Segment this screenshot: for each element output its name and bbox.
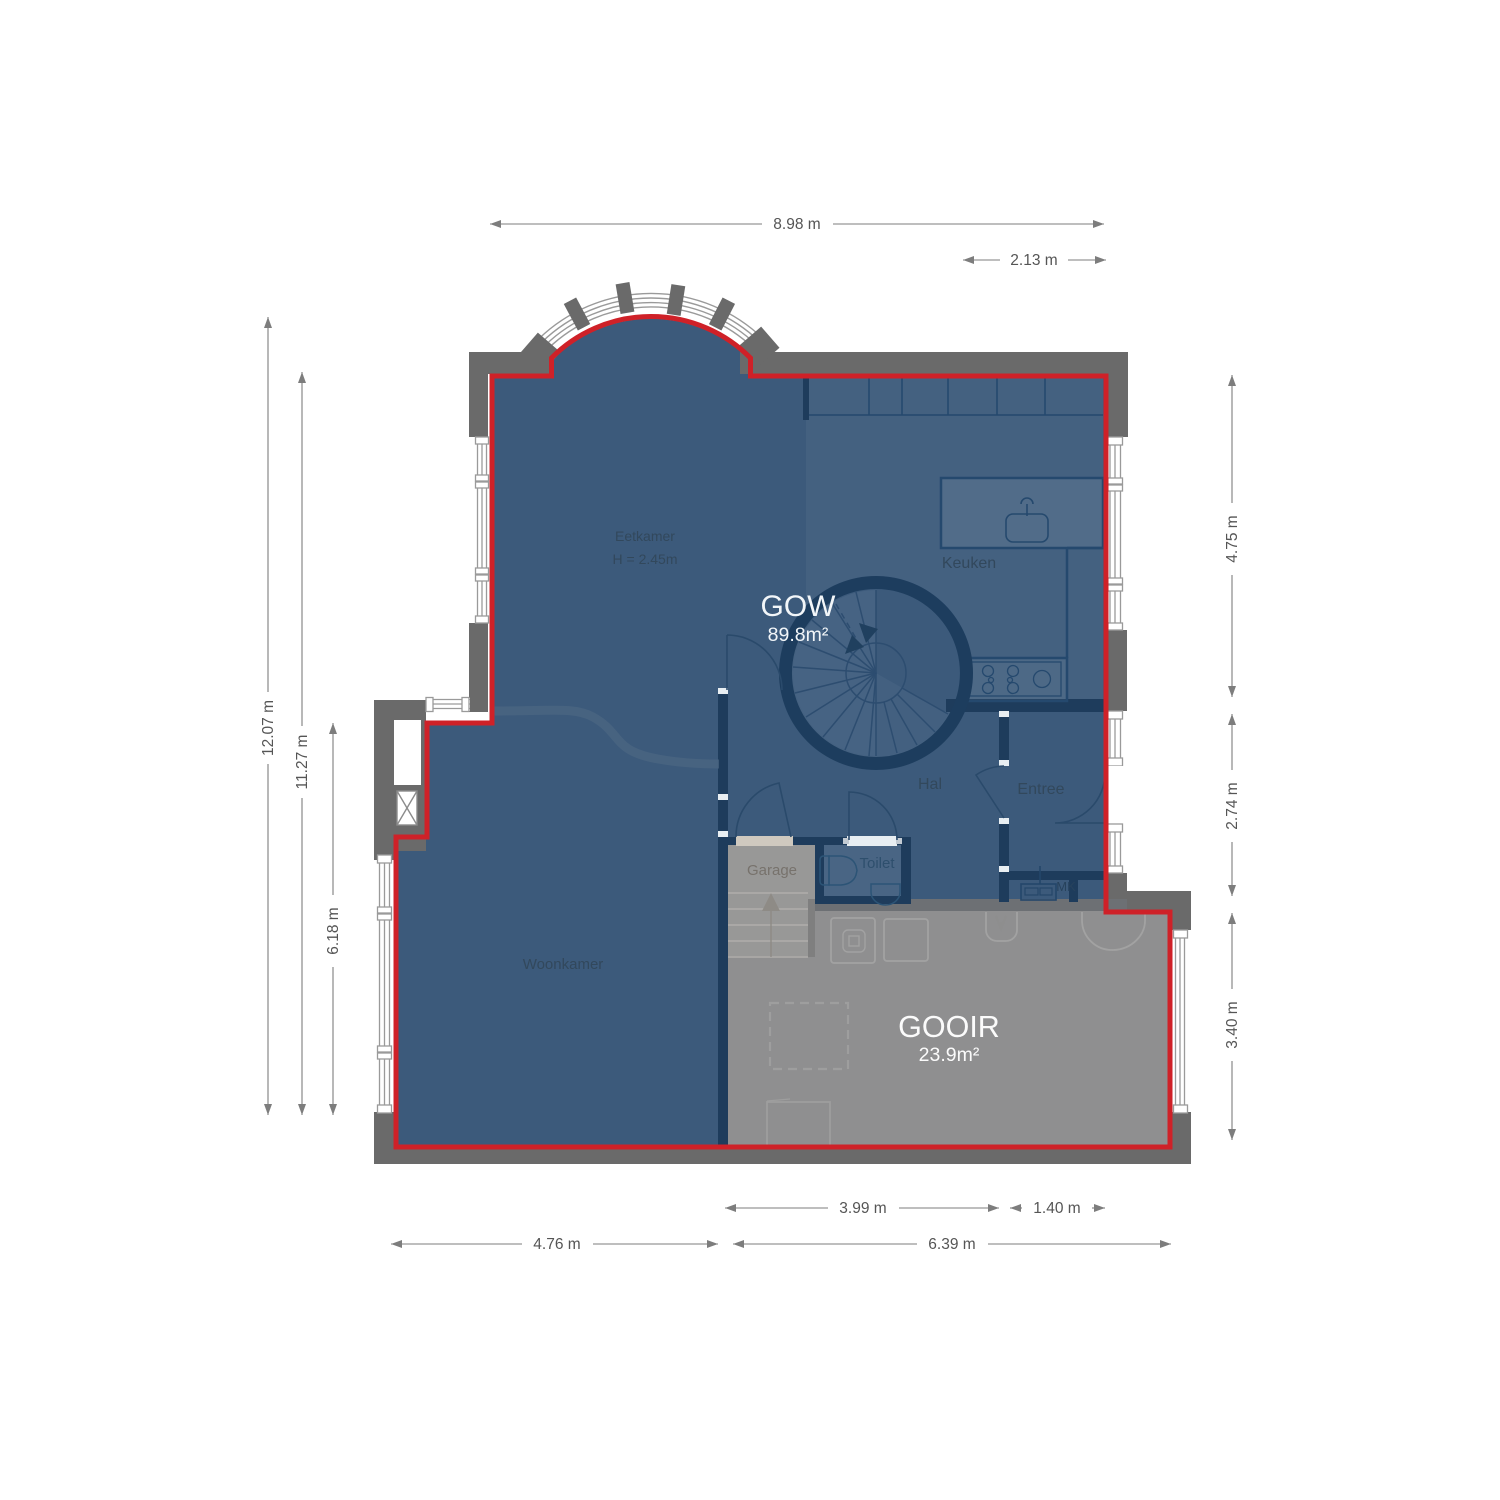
svg-text:2.74 m: 2.74 m xyxy=(1224,782,1241,829)
svg-text:23.9m²: 23.9m² xyxy=(919,1044,980,1066)
svg-text:11.27 m: 11.27 m xyxy=(294,735,311,790)
svg-text:6.39 m: 6.39 m xyxy=(928,1236,975,1253)
svg-text:Garage: Garage xyxy=(747,862,797,879)
svg-text:Keuken: Keuken xyxy=(942,555,996,572)
svg-text:Eetkamer: Eetkamer xyxy=(615,528,675,544)
svg-text:Hal: Hal xyxy=(918,776,942,793)
svg-text:3.99 m: 3.99 m xyxy=(839,1200,886,1217)
svg-text:3.40 m: 3.40 m xyxy=(1224,1001,1241,1048)
svg-text:Woonkamer: Woonkamer xyxy=(523,956,604,973)
svg-text:89.8m²: 89.8m² xyxy=(768,624,829,646)
svg-text:GOW: GOW xyxy=(761,590,837,623)
svg-text:Toilet: Toilet xyxy=(859,855,895,872)
svg-text:GOOIR: GOOIR xyxy=(898,1010,1000,1044)
svg-text:6.18 m: 6.18 m xyxy=(325,907,342,954)
svg-text:12.07 m: 12.07 m xyxy=(260,700,277,756)
svg-text:Entree: Entree xyxy=(1017,781,1064,798)
svg-text:1.40 m: 1.40 m xyxy=(1033,1200,1080,1217)
svg-text:2.13 m: 2.13 m xyxy=(1010,252,1057,269)
svg-text:4.76 m: 4.76 m xyxy=(533,1236,580,1253)
svg-text:H = 2.45m: H = 2.45m xyxy=(613,551,678,567)
svg-text:MK: MK xyxy=(1056,879,1076,894)
svg-text:4.75 m: 4.75 m xyxy=(1224,515,1241,562)
svg-text:8.98 m: 8.98 m xyxy=(773,216,820,233)
